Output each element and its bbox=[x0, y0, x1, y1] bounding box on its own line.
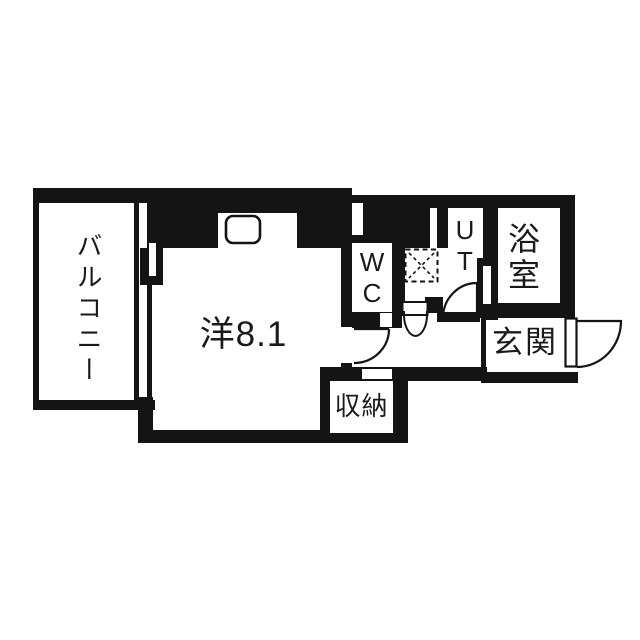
window-line-outer bbox=[134, 203, 139, 400]
storage-doorway bbox=[362, 369, 392, 379]
wall-segment bbox=[392, 243, 405, 314]
wall-segment bbox=[483, 303, 563, 318]
wall-segment bbox=[481, 372, 578, 383]
wall-segment bbox=[437, 312, 480, 322]
wall-opening bbox=[149, 243, 156, 276]
entrance-label: 玄関 bbox=[488, 325, 562, 361]
wall-segment bbox=[437, 208, 448, 248]
wall-segment bbox=[341, 195, 405, 243]
balcony-label: バルコニー bbox=[75, 214, 107, 404]
washer-space-icon bbox=[406, 250, 438, 282]
bath-doorway bbox=[483, 266, 491, 304]
wall-segment bbox=[138, 430, 330, 443]
bifold-door-icon bbox=[403, 302, 428, 315]
wc-label: WC bbox=[357, 243, 387, 313]
kitchen-sink-icon bbox=[226, 216, 260, 243]
wall-opening bbox=[352, 203, 363, 235]
bathroom-label: 浴室 bbox=[509, 216, 545, 300]
front-door-swing-icon bbox=[577, 321, 621, 367]
balcony-outer-wall bbox=[33, 195, 39, 410]
wall-segment bbox=[425, 297, 443, 313]
wall-segment bbox=[350, 312, 402, 328]
washer-space-cross-icon bbox=[409, 253, 434, 278]
bifold-door-icon bbox=[404, 311, 427, 336]
front-door-leaf-icon bbox=[566, 319, 577, 367]
western-room-label: 洋8.1 bbox=[186, 314, 301, 356]
room-doorway bbox=[341, 327, 352, 363]
storage-label: 収納 bbox=[330, 391, 393, 421]
utility-label: UT bbox=[450, 211, 480, 281]
door-swing-icon bbox=[354, 329, 389, 363]
wc-doorway bbox=[380, 313, 392, 327]
floorplan-canvas: バルコニー 洋8.1 WC UT 浴室 玄関 収納 bbox=[0, 0, 640, 640]
wall-segment bbox=[147, 188, 218, 248]
wall-opening bbox=[430, 208, 437, 248]
window-line-inner bbox=[147, 283, 152, 397]
wall-segment bbox=[560, 195, 575, 318]
wall-segment bbox=[218, 188, 297, 213]
entrance-step-line bbox=[481, 318, 486, 372]
